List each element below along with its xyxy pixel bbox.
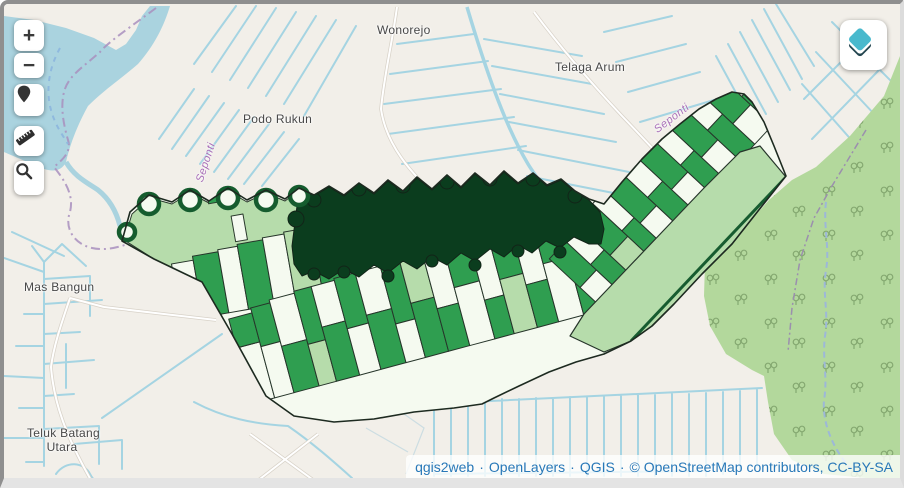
attribution-link-qgis[interactable]: QGIS: [580, 459, 615, 475]
search-button[interactable]: [14, 161, 44, 195]
attribution-link-qgis2web[interactable]: qgis2web: [415, 459, 474, 475]
app-window: Wonorejo Telaga Arum Podo Rukun Mas Bang…: [0, 0, 904, 488]
measure-button[interactable]: [14, 126, 44, 156]
locate-button[interactable]: [14, 84, 44, 116]
attribution-link-openlayers[interactable]: OpenLayers: [489, 459, 565, 475]
attribution-separator: ·: [474, 459, 489, 475]
attribution-bar: qgis2web · OpenLayers · QGIS · © OpenStr…: [406, 455, 900, 478]
zoom-in-button[interactable]: +: [14, 20, 44, 51]
layer-switcher-button[interactable]: [840, 20, 887, 70]
river-channel: [66, 162, 120, 226]
attribution-link-osm[interactable]: © OpenStreetMap contributors, CC-BY-SA: [630, 459, 893, 475]
zoom-out-button[interactable]: −: [14, 53, 44, 78]
map-canvas[interactable]: [4, 4, 900, 478]
attribution-separator: ·: [615, 459, 630, 475]
map-viewport[interactable]: Wonorejo Telaga Arum Podo Rukun Mas Bang…: [4, 4, 900, 478]
attribution-separator: ·: [565, 459, 580, 475]
